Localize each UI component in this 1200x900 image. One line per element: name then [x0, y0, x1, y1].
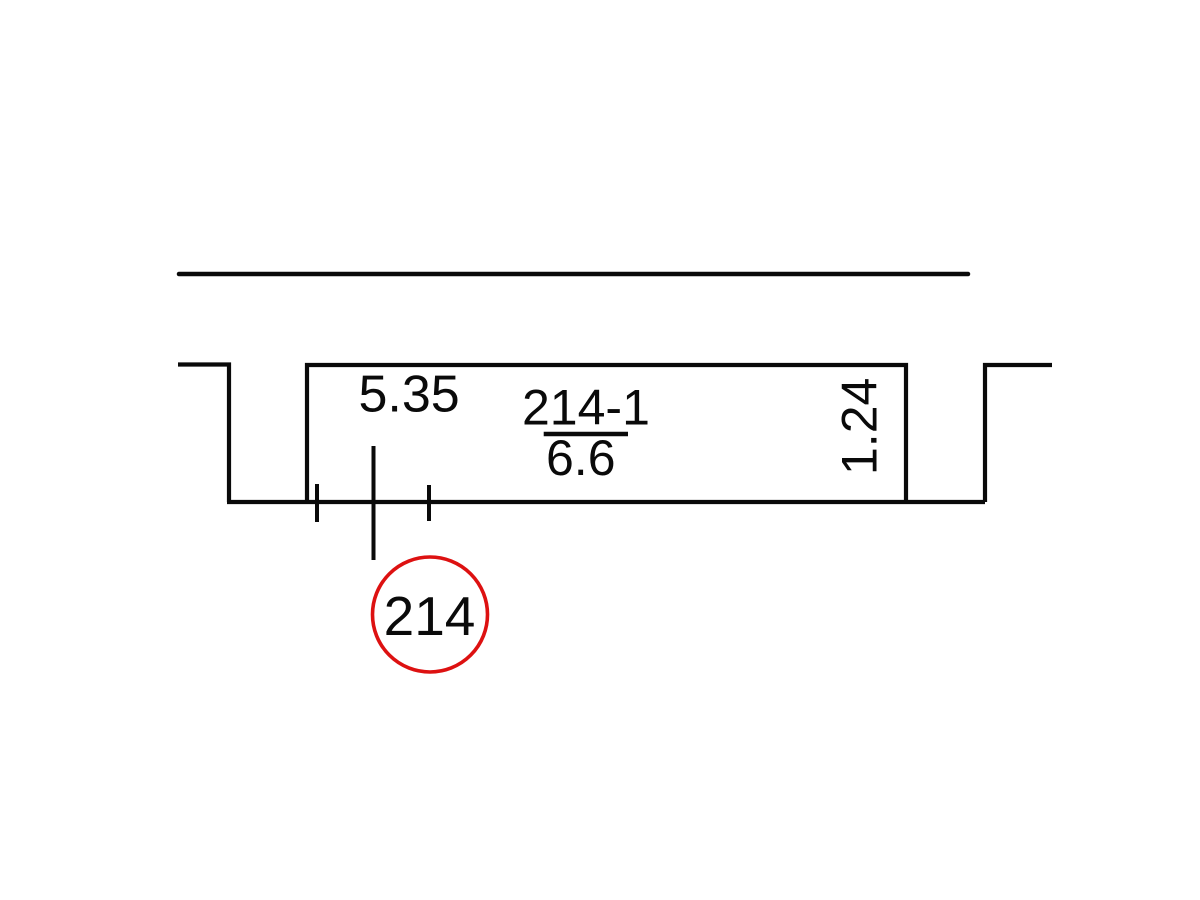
svg-text:214-1: 214-1: [522, 380, 650, 436]
svg-text:5.35: 5.35: [359, 366, 460, 424]
svg-text:1.24: 1.24: [832, 378, 888, 475]
svg-text:6.6: 6.6: [546, 430, 616, 486]
svg-text:214: 214: [384, 585, 476, 647]
